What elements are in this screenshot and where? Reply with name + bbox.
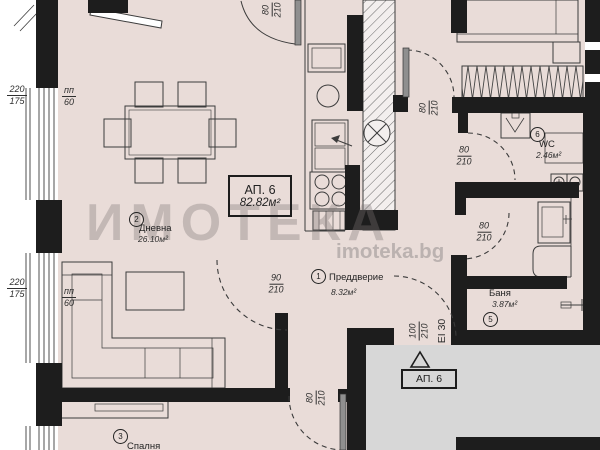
window2-sill-label: пп60 (59, 286, 79, 309)
door-living-label: 90210 (268, 273, 283, 296)
door-leaf-bedroom-top (403, 48, 409, 97)
room-area-wc: 2.46м² (536, 150, 561, 160)
wardrobe (462, 66, 583, 99)
door-bath-label: 80210 (476, 221, 491, 244)
entrance-fire-rating-label: EI 30 (436, 319, 448, 344)
floor-plan: ИМОТЕКА imoteka.bg 220175 пп60 220175 пп… (0, 0, 600, 450)
door-top-label: 80210 (261, 2, 284, 17)
window1-dim-label: 220175 (2, 84, 32, 107)
room-number-bedroom3: 3 (113, 429, 128, 444)
window-2 (26, 253, 58, 363)
room-name-hall: Преддверие (329, 272, 383, 283)
common-corridor-floor (366, 345, 600, 450)
room-name-bedroom3: Спалня (127, 441, 160, 450)
door-leaf-top (295, 0, 301, 45)
window2-dim-label: 220175 (2, 277, 32, 300)
room-name-bath: Баня (489, 288, 511, 299)
room-name-living: Дневна (139, 223, 172, 234)
window-3 (26, 426, 58, 450)
apartment-number: АП. 6 (244, 183, 275, 197)
door-wc-label: 80210 (456, 145, 471, 168)
door-leaf-bedroom3 (340, 394, 346, 450)
room-number-hall: 1 (311, 269, 326, 284)
room-area-hall: 8.32м² (331, 287, 356, 297)
watermark-site: imoteka.bg (336, 240, 444, 264)
door-bedroom3-label: 80210 (305, 390, 328, 405)
door-bedroom-top-label: 80210 (418, 100, 441, 115)
room-area-bath: 3.87м² (492, 299, 517, 309)
section-hatch (14, 5, 38, 31)
door-entrance-label: 100210 (408, 321, 431, 340)
room-name-wc: WC (539, 139, 555, 150)
window1-sill-label: пп60 (59, 85, 79, 108)
room-area-living: 26.10м² (138, 234, 168, 244)
entrance-label-box: АП. 6 (401, 369, 457, 389)
room-number-bath: 5 (483, 312, 498, 327)
apartment-area: 82.82м² (240, 197, 281, 209)
apartment-label-box: АП. 6 82.82м² (228, 175, 292, 217)
